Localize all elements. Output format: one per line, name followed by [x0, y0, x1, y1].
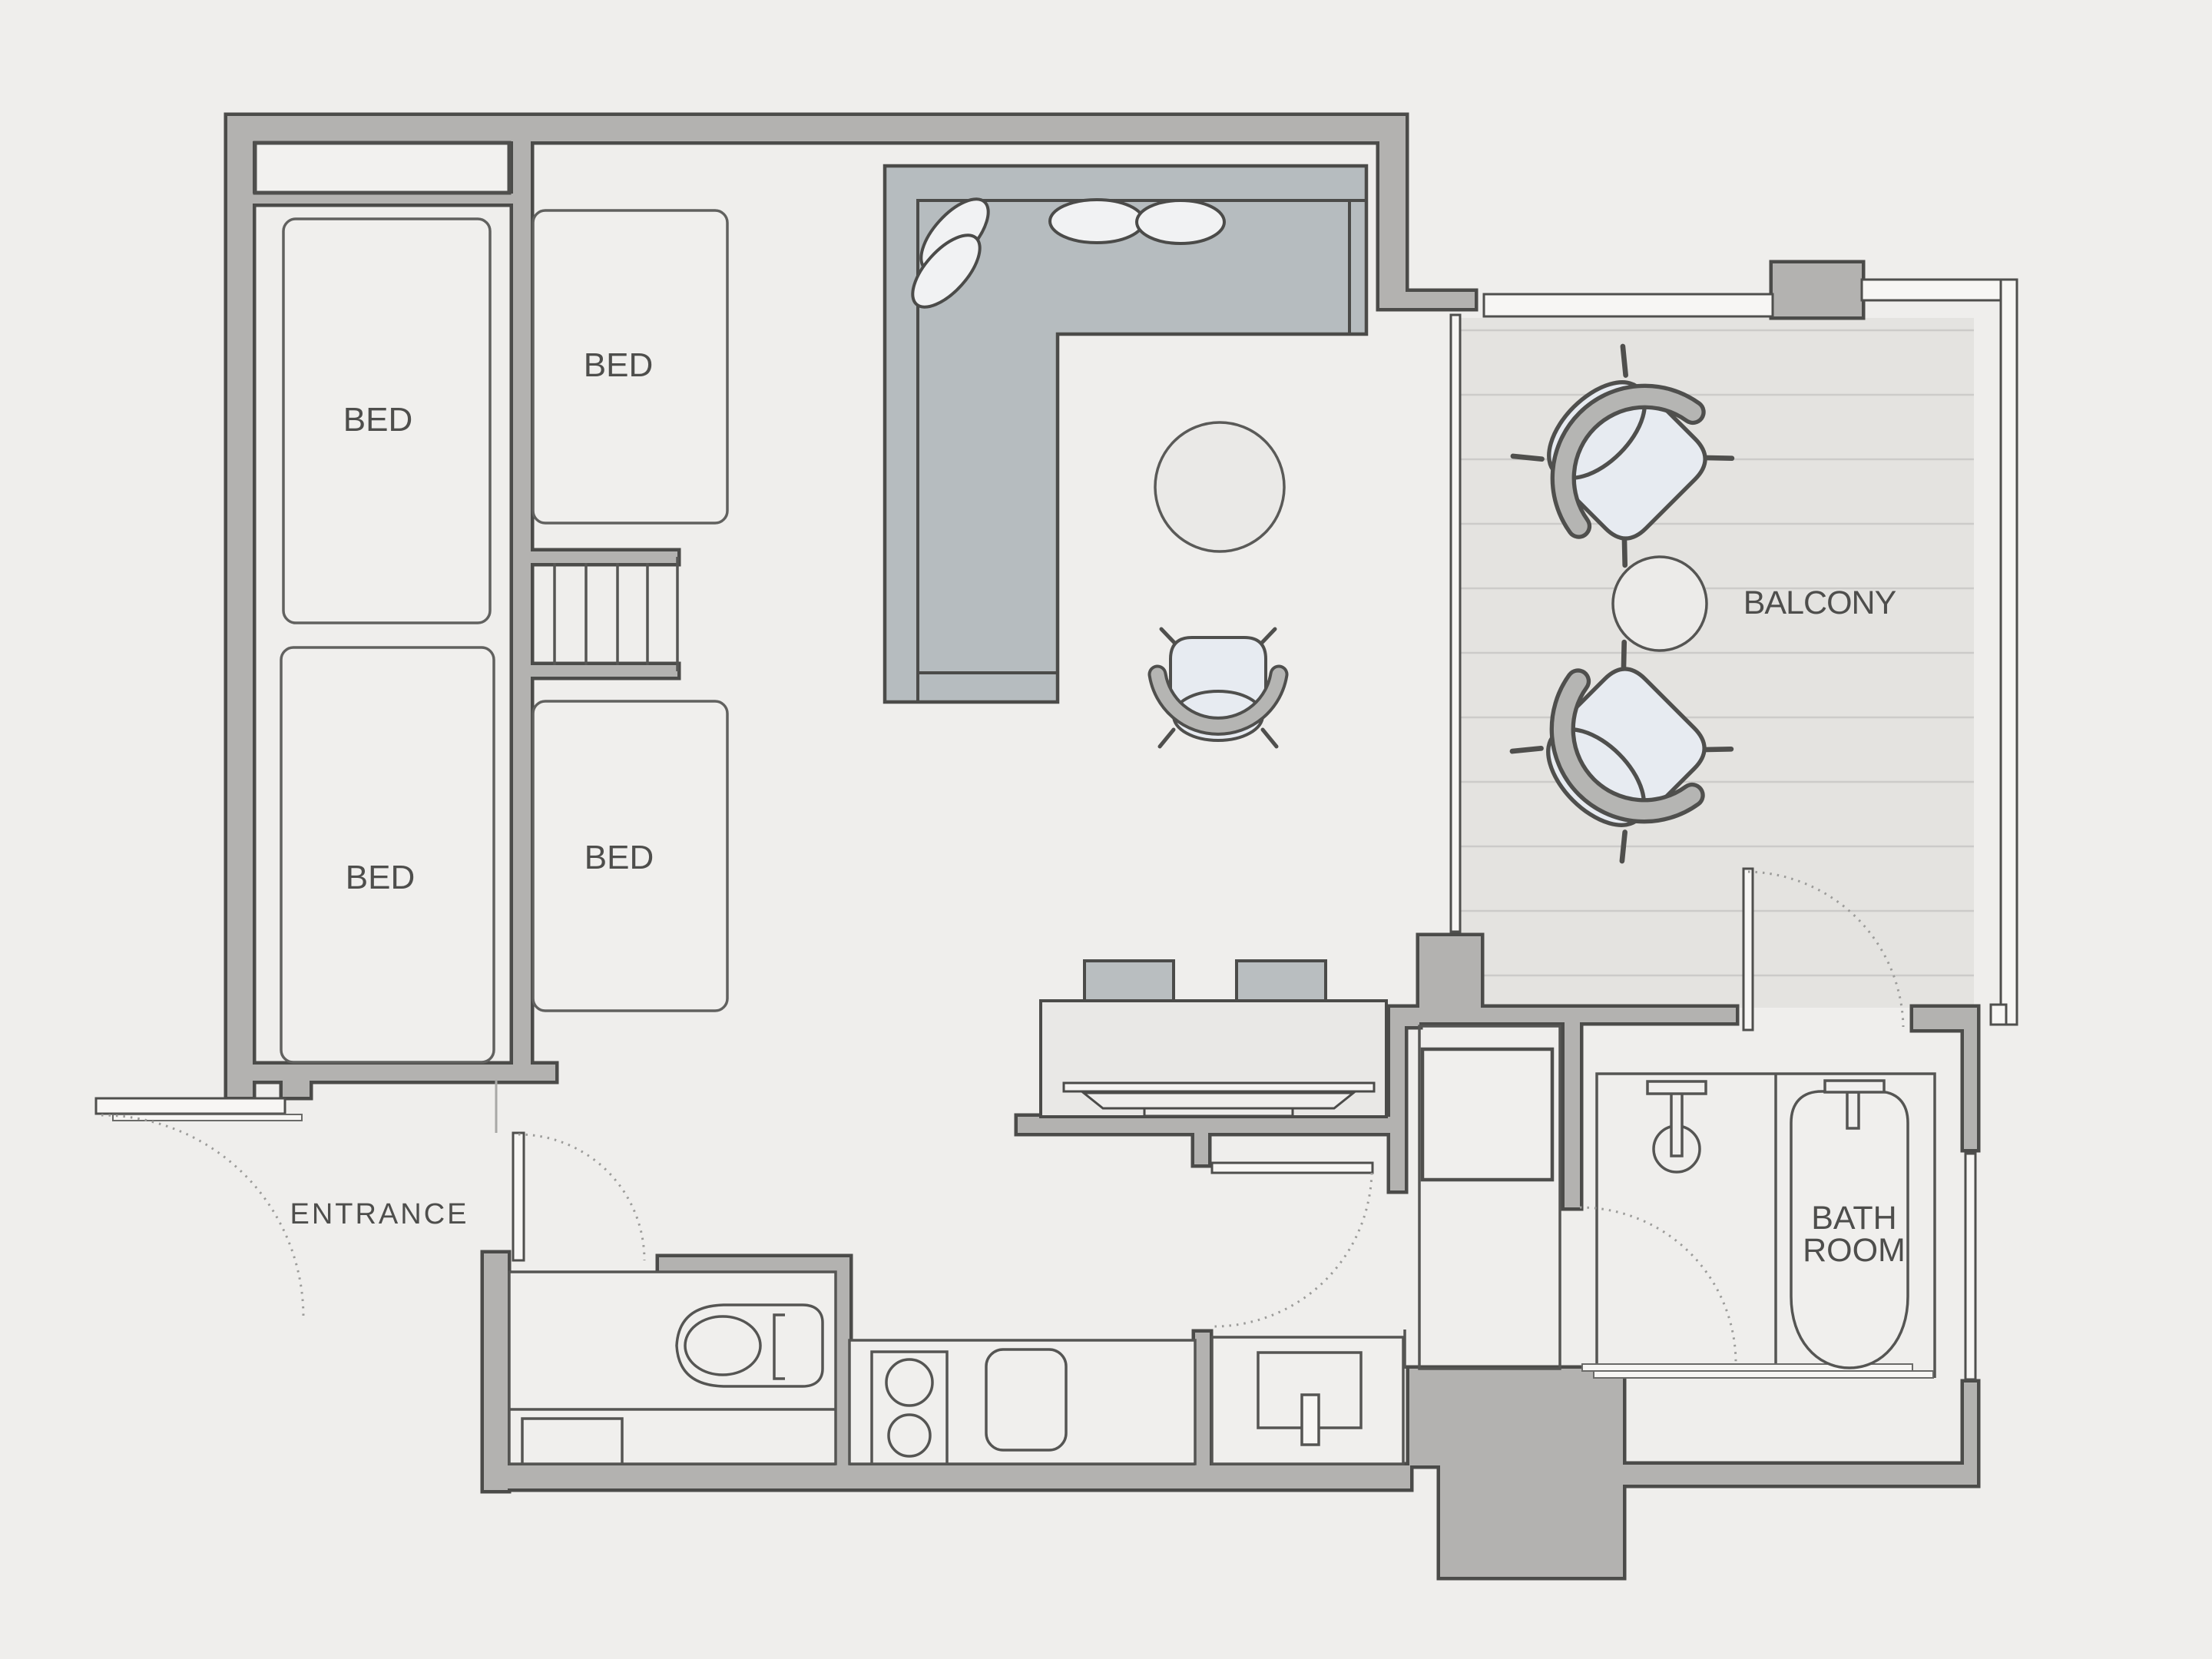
svg-text:BED: BED: [346, 859, 415, 896]
svg-text:ENTRANCE: ENTRANCE: [290, 1198, 469, 1230]
svg-text:BALCONY: BALCONY: [1743, 584, 1896, 621]
svg-text:ROOM: ROOM: [1803, 1232, 1906, 1269]
svg-text:BED: BED: [343, 401, 412, 439]
svg-text:BED: BED: [584, 839, 654, 876]
svg-text:BATH: BATH: [1811, 1200, 1897, 1237]
svg-text:BED: BED: [584, 346, 653, 384]
